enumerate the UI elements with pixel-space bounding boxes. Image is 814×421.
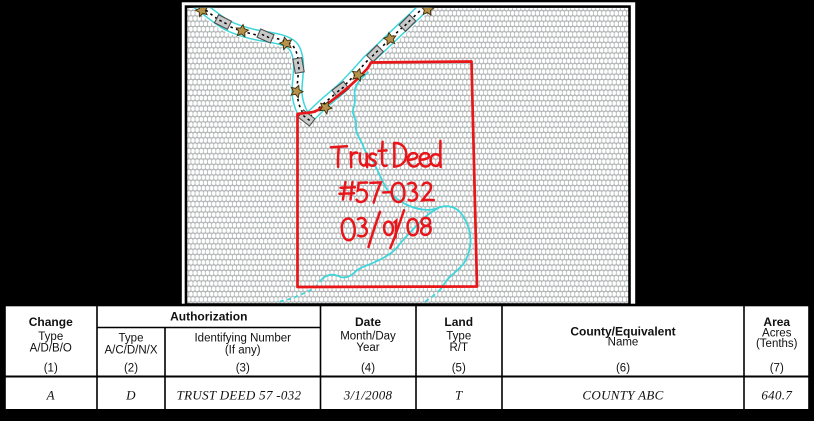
svg-text:COUNTY ABC: COUNTY ABC (582, 388, 663, 403)
svg-text:(3): (3) (236, 363, 250, 375)
svg-text:(If any): (If any) (225, 345, 261, 357)
svg-text:Type: Type (38, 331, 63, 343)
svg-text:Land: Land (444, 315, 473, 329)
svg-text:Name: Name (608, 337, 639, 349)
svg-text:Date: Date (355, 315, 381, 329)
svg-text:3/1/2008: 3/1/2008 (343, 388, 393, 403)
svg-text:640.7: 640.7 (761, 388, 792, 403)
svg-text:T: T (455, 388, 463, 403)
svg-text:(4): (4) (361, 363, 375, 375)
svg-text:R/T: R/T (449, 342, 468, 354)
svg-text:(7): (7) (770, 363, 784, 375)
svg-text:A/C/D/N/X: A/C/D/N/X (104, 345, 157, 357)
svg-text:(6): (6) (616, 363, 630, 375)
svg-text:(2): (2) (124, 363, 138, 375)
svg-text:Month/Day: Month/Day (340, 331, 396, 343)
svg-text:A: A (46, 388, 55, 403)
svg-text:D: D (125, 388, 136, 403)
svg-text:TRUST DEED 57 -032: TRUST DEED 57 -032 (177, 388, 302, 403)
svg-text:Type: Type (119, 333, 144, 345)
svg-text:(Tenths): (Tenths) (756, 338, 798, 350)
svg-text:Change: Change (29, 315, 73, 329)
svg-text:Year: Year (356, 342, 379, 354)
svg-text:(5): (5) (452, 363, 466, 375)
svg-text:Identifying Number: Identifying Number (194, 333, 291, 345)
svg-text:A/D/B/O: A/D/B/O (30, 343, 72, 355)
svg-text:(1): (1) (44, 363, 58, 375)
svg-text:Type: Type (446, 331, 471, 343)
svg-text:Authorization: Authorization (170, 310, 247, 324)
